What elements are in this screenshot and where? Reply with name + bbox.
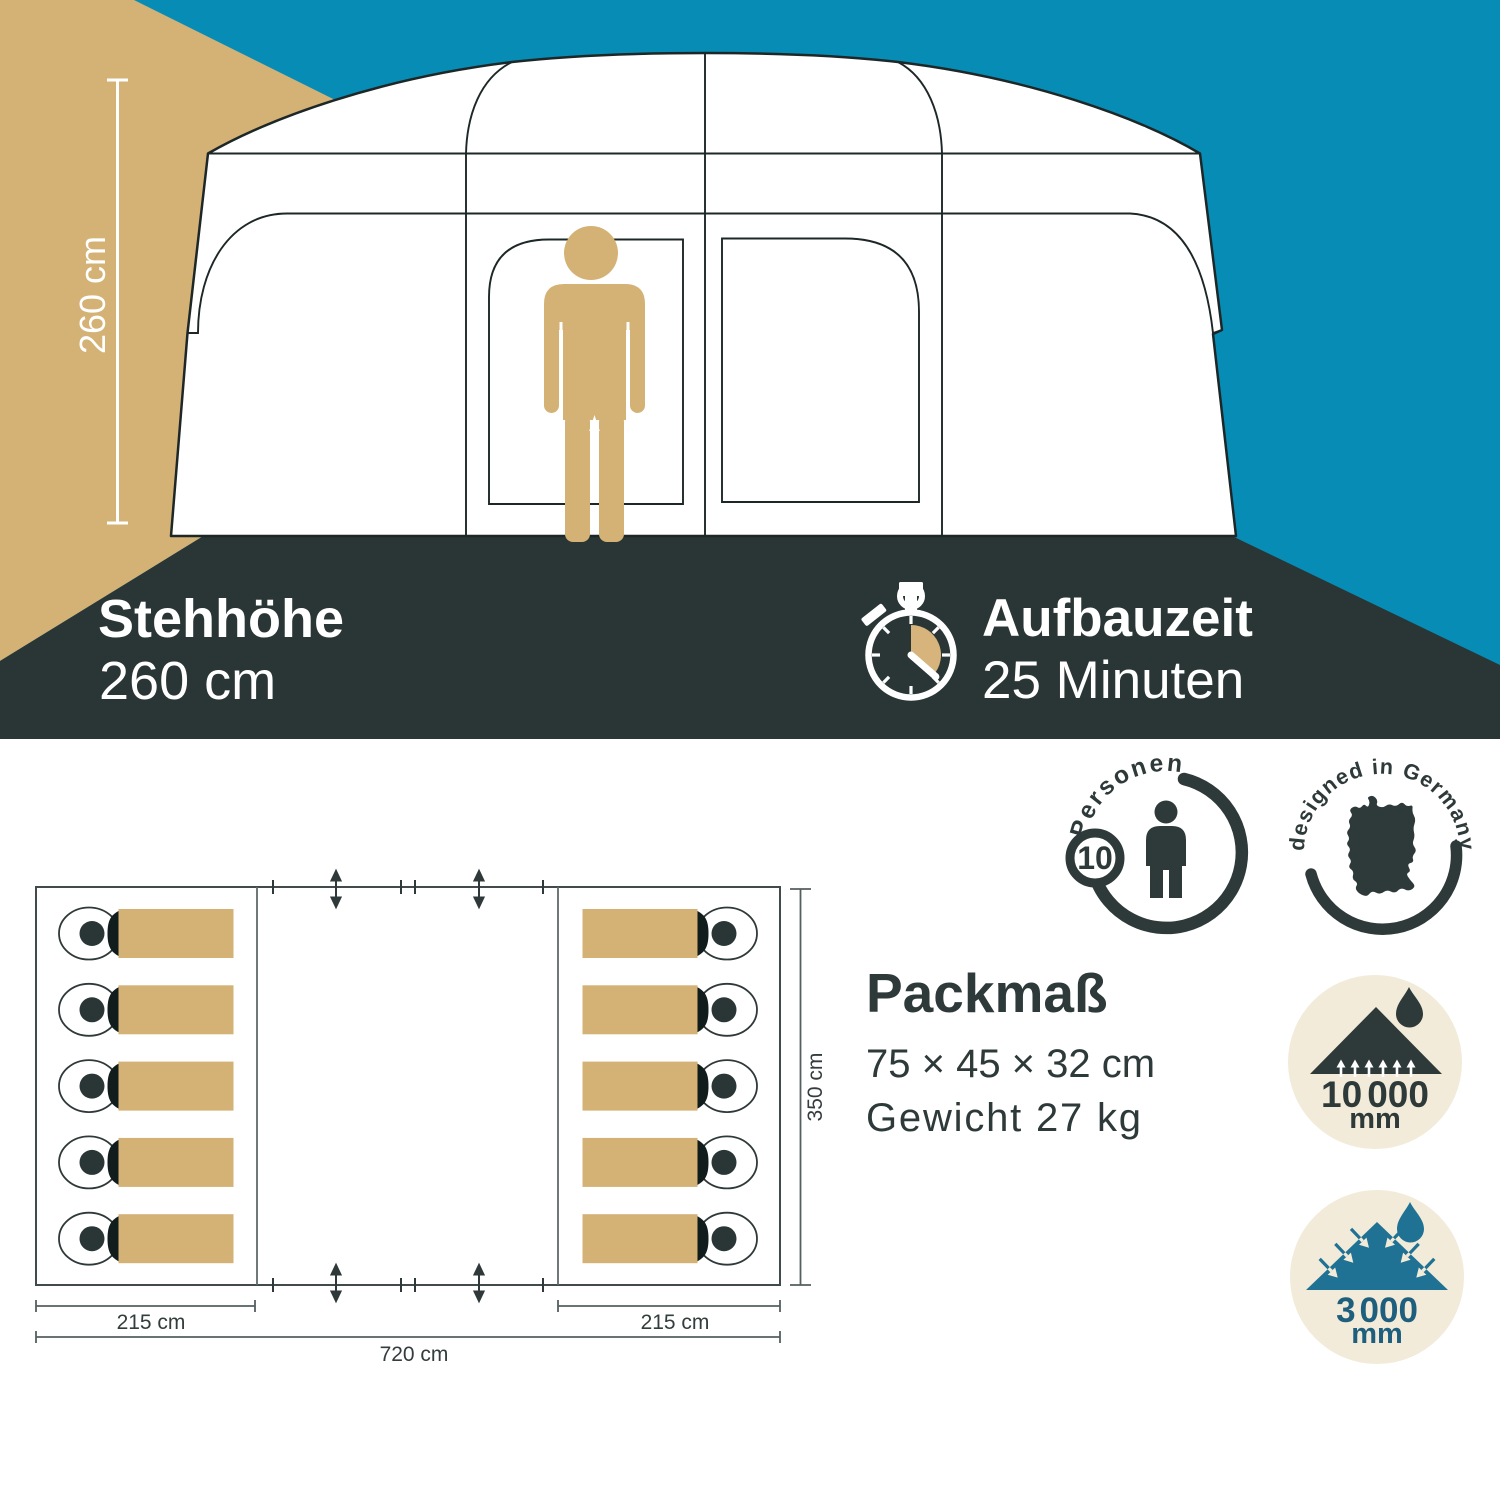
svg-text:215 cm: 215 cm: [117, 1311, 186, 1334]
svg-text:10: 10: [1077, 840, 1113, 876]
svg-text:mm: mm: [1351, 1318, 1403, 1350]
svg-text:260 cm: 260 cm: [72, 236, 113, 354]
svg-text:260 cm: 260 cm: [99, 651, 276, 711]
svg-text:Gewicht 27 kg: Gewicht 27 kg: [866, 1096, 1143, 1140]
svg-text:Packmaß: Packmaß: [866, 962, 1108, 1024]
svg-text:Stehhöhe: Stehhöhe: [98, 589, 344, 649]
svg-text:mm: mm: [1349, 1103, 1401, 1135]
svg-text:25 Minuten: 25 Minuten: [982, 651, 1244, 710]
svg-text:Aufbauzeit: Aufbauzeit: [982, 589, 1253, 648]
svg-text:215 cm: 215 cm: [641, 1311, 710, 1334]
svg-text:720 cm: 720 cm: [380, 1343, 449, 1366]
svg-text:75 × 45 × 32 cm: 75 × 45 × 32 cm: [866, 1042, 1155, 1086]
svg-text:350 cm: 350 cm: [804, 1053, 827, 1122]
